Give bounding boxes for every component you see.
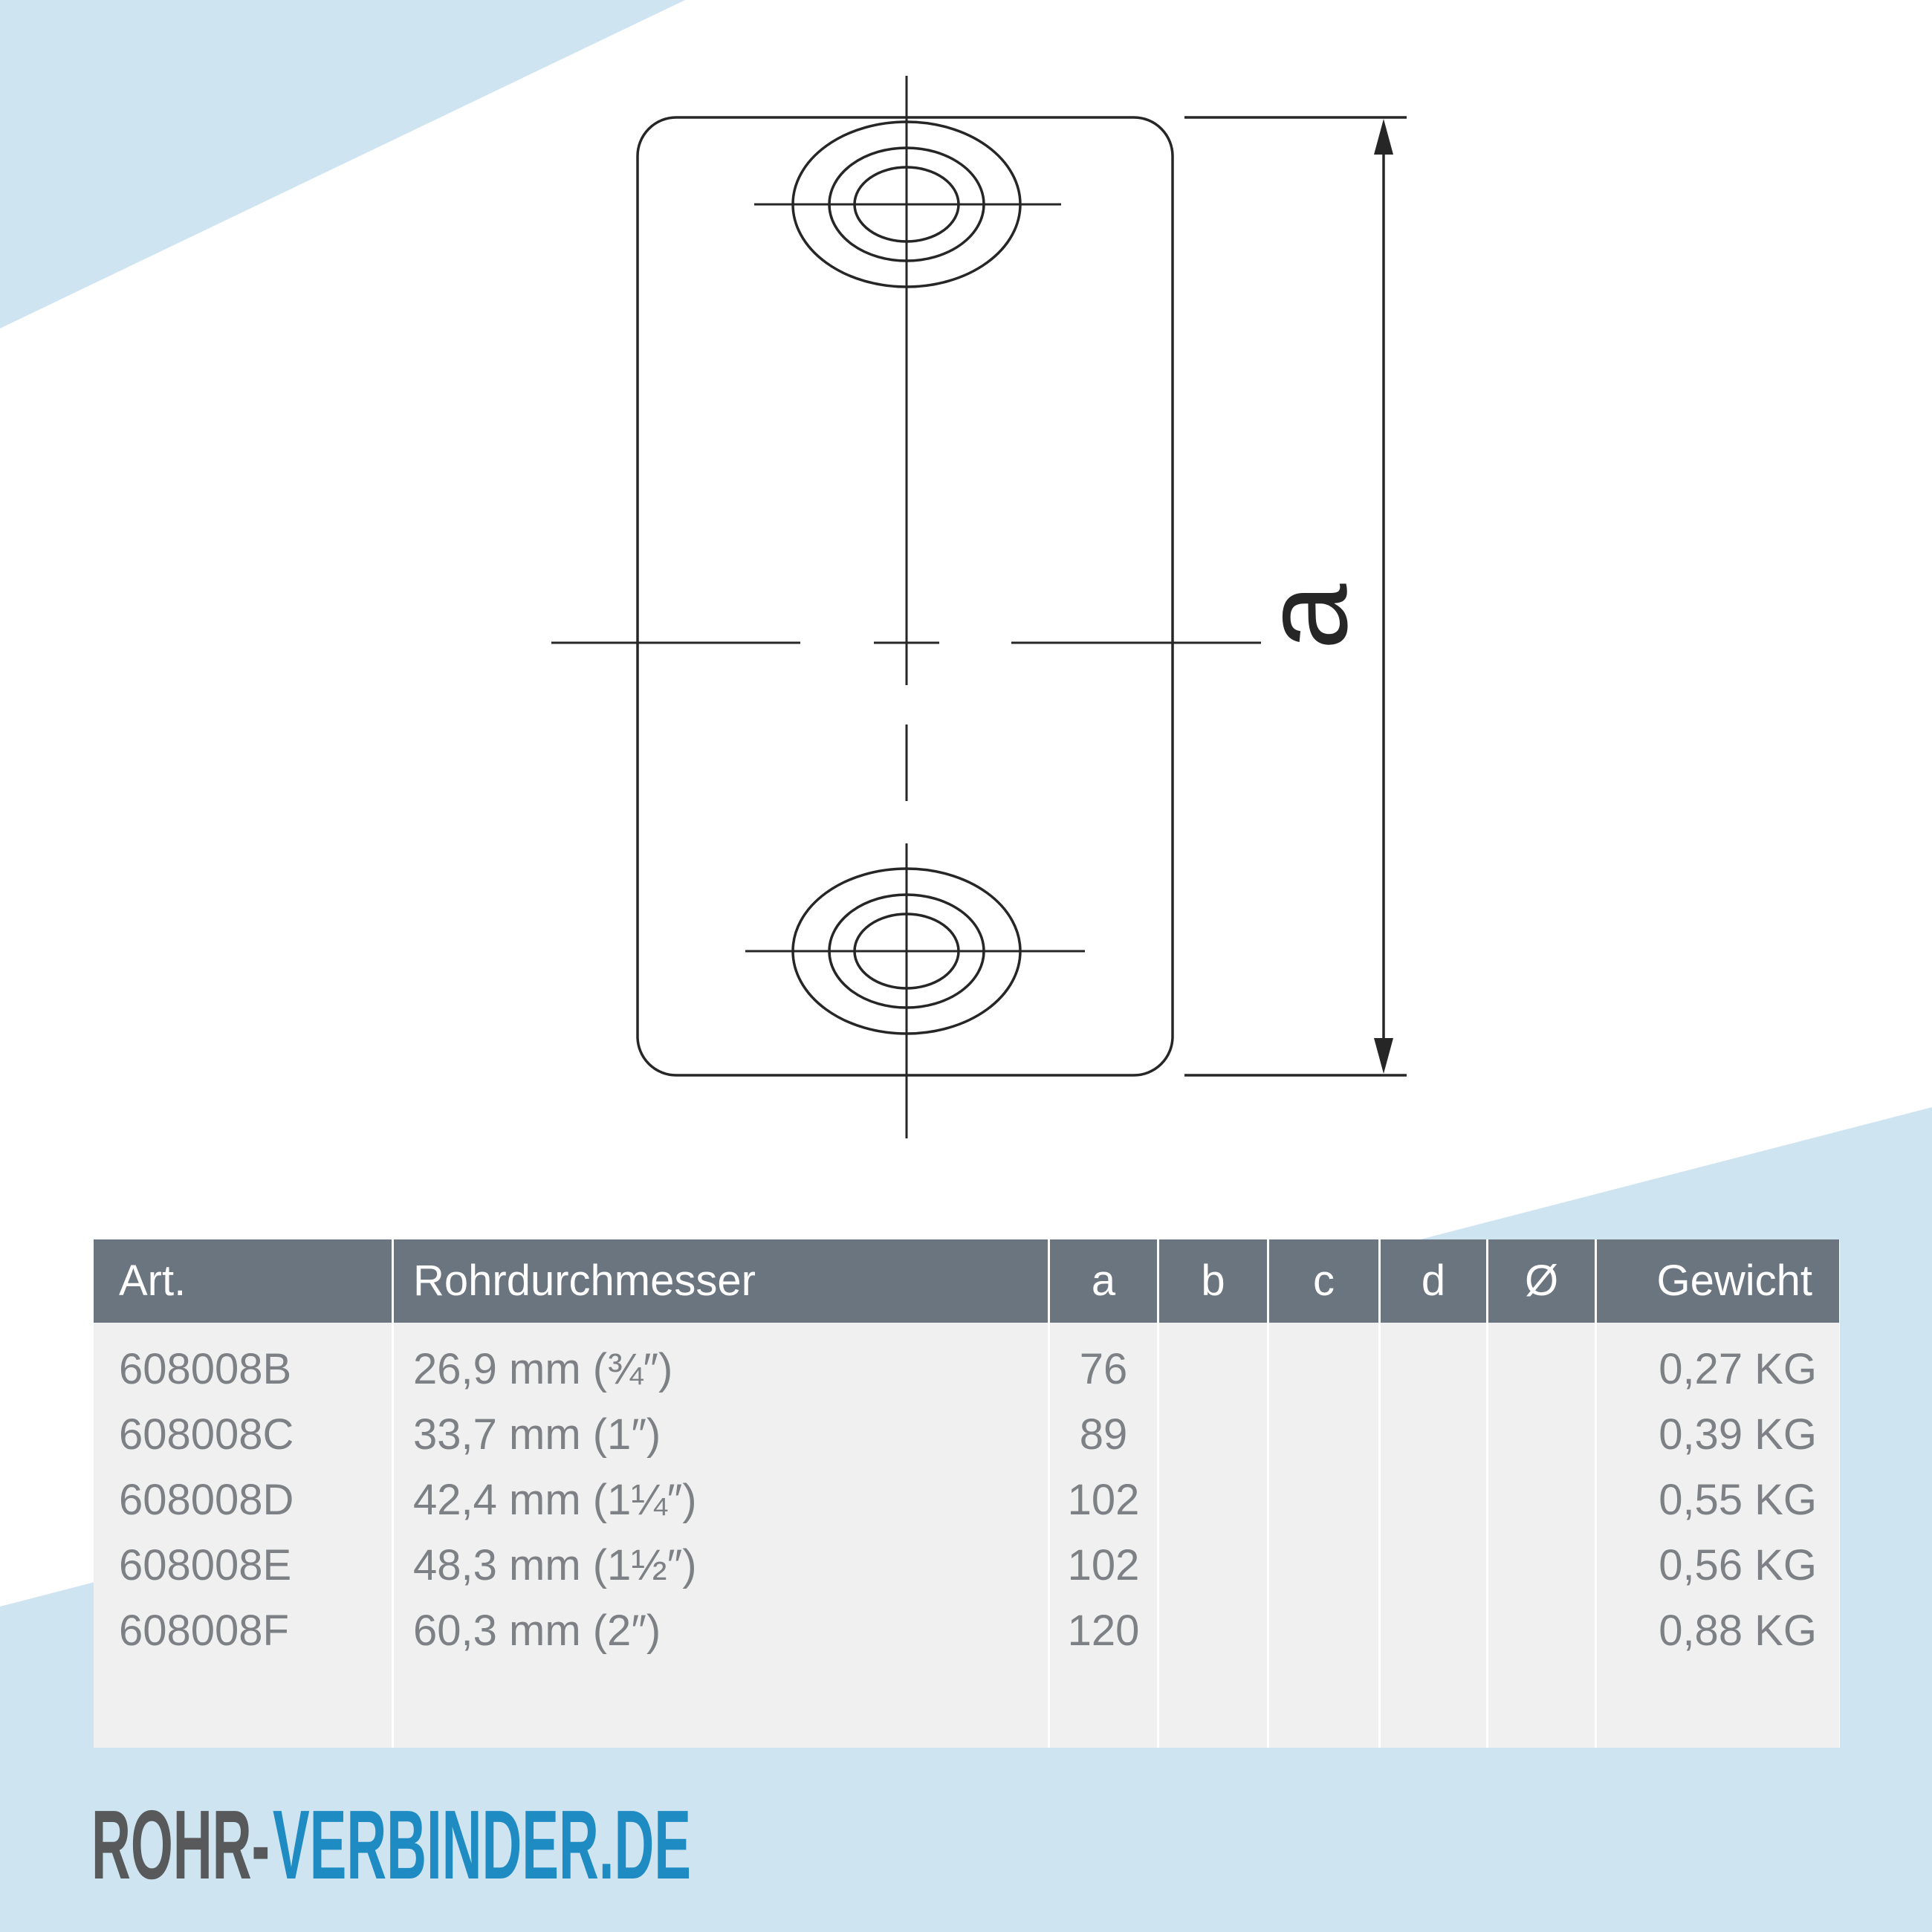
table-cell: 76 <box>1050 1337 1157 1402</box>
column-diameter <box>1488 1323 1595 1748</box>
table-cell <box>1159 1402 1267 1468</box>
page-background: a ROHR- VERBINDER.DE Art. Rohrdurchmesse… <box>0 0 1932 1932</box>
header-cell-gewicht: Gewicht <box>1597 1239 1839 1323</box>
header-cell-rohrdurchmesser: Rohrdurchmesser <box>394 1239 1048 1323</box>
column-a: 7689102102120 <box>1050 1323 1157 1748</box>
table-cell <box>1159 1337 1267 1402</box>
header-cell-art: Art. <box>94 1239 392 1323</box>
table-cell: 33,7 mm (1″) <box>413 1402 1048 1468</box>
table-cell: 0,56 KG <box>1597 1533 1817 1598</box>
table-cell: 89 <box>1050 1402 1157 1468</box>
table-cell <box>1381 1337 1486 1402</box>
column-c <box>1269 1323 1378 1748</box>
header-cell-d: d <box>1381 1239 1486 1323</box>
table-cell: 102 <box>1050 1533 1157 1598</box>
table-cell: 0,55 KG <box>1597 1468 1817 1533</box>
table-cell: 608008E <box>119 1533 392 1598</box>
header-cell-diameter: Ø <box>1488 1239 1595 1323</box>
column-b <box>1159 1323 1267 1748</box>
column-d <box>1381 1323 1486 1748</box>
dimension-arrow-up-icon <box>1374 119 1393 155</box>
table-cell: 42,4 mm (1¼″) <box>413 1468 1048 1533</box>
table-cell <box>1381 1402 1486 1468</box>
table-cell <box>1269 1533 1378 1598</box>
table-cell <box>1488 1598 1595 1664</box>
column-art: 608008B608008C608008D608008E608008F <box>94 1323 392 1748</box>
table-cell <box>1159 1468 1267 1533</box>
table-cell: 608008F <box>119 1598 392 1664</box>
column-rohrdurchmesser: 26,9 mm (¾″)33,7 mm (1″)42,4 mm (1¼″)48,… <box>394 1323 1048 1748</box>
header-cell-a: a <box>1050 1239 1157 1323</box>
table-cell <box>1488 1533 1595 1598</box>
table-cell <box>1159 1598 1267 1664</box>
table-cell: 608008D <box>119 1468 392 1533</box>
table-cell: 60,3 mm (2″) <box>413 1598 1048 1664</box>
table-cell: 608008C <box>119 1402 392 1468</box>
dimension-arrow-down-icon <box>1374 1038 1393 1074</box>
table-cell: 48,3 mm (1½″) <box>413 1533 1048 1598</box>
logo-verbinder: VERBINDER.DE <box>273 1790 691 1899</box>
technical-drawing: a <box>551 76 1407 1138</box>
table-cell <box>1381 1468 1486 1533</box>
spec-table: Art. Rohrdurchmesser a b c d Ø Gewicht 6… <box>94 1239 1840 1748</box>
table-cell <box>1381 1598 1486 1664</box>
table-cell <box>1159 1533 1267 1598</box>
table-cell <box>1488 1468 1595 1533</box>
column-gewicht: 0,27 KG0,39 KG0,55 KG0,56 KG0,88 KG <box>1597 1323 1839 1748</box>
table-cell: 26,9 mm (¾″) <box>413 1337 1048 1402</box>
logo-rohr: ROHR- <box>91 1790 270 1899</box>
dimension-label: a <box>1239 583 1372 649</box>
logo: ROHR- VERBINDER.DE <box>91 1790 691 1899</box>
table-cell <box>1269 1598 1378 1664</box>
top-left-accent-shape <box>0 0 685 328</box>
table-cell: 102 <box>1050 1468 1157 1533</box>
table-cell <box>1488 1337 1595 1402</box>
header-cell-c: c <box>1269 1239 1378 1323</box>
table-cell: 0,88 KG <box>1597 1598 1817 1664</box>
table-cell <box>1269 1468 1378 1533</box>
table-cell: 608008B <box>119 1337 392 1402</box>
table-cell <box>1269 1337 1378 1402</box>
table-cell: 120 <box>1050 1598 1157 1664</box>
header-cell-b: b <box>1159 1239 1267 1323</box>
table-cell: 0,27 KG <box>1597 1337 1817 1402</box>
table-cell: 0,39 KG <box>1597 1402 1817 1468</box>
table-cell <box>1488 1402 1595 1468</box>
table-cell <box>1381 1533 1486 1598</box>
table-cell <box>1269 1402 1378 1468</box>
